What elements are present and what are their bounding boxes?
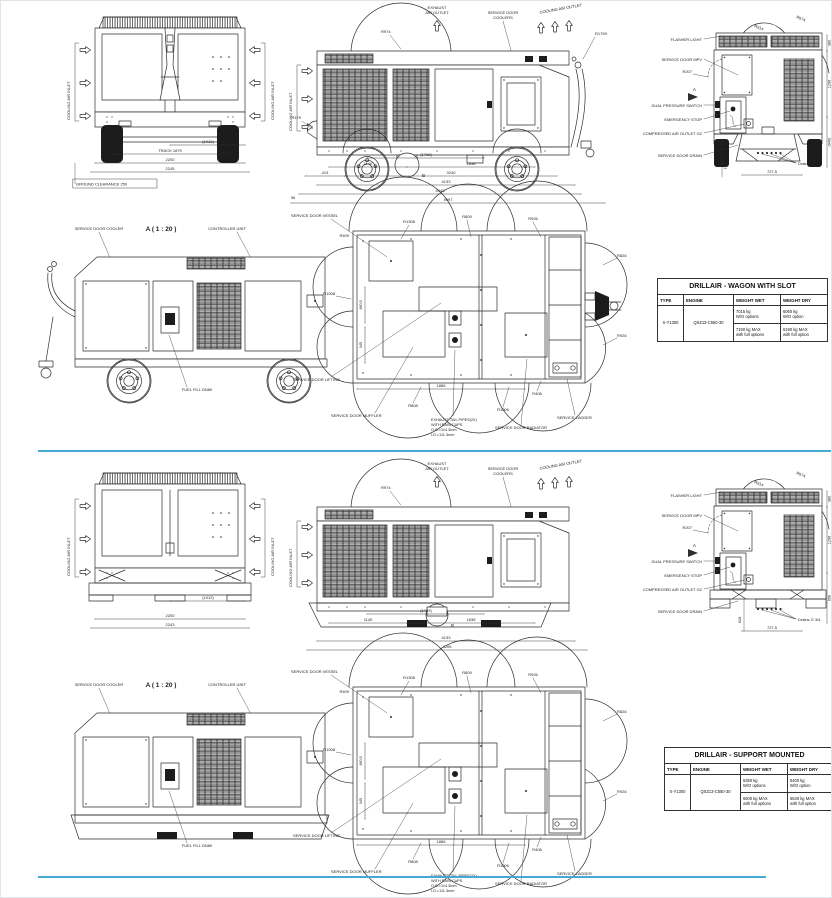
drains-label: Drains G 3/4 (798, 617, 821, 622)
rear-view-drawing (708, 33, 822, 134)
col-weight-dry: WEIGHT DRY (788, 764, 832, 775)
radius-label: R1008 (323, 747, 336, 752)
detail-title: A ( 1 : 20 ) (146, 226, 177, 233)
service-door-lifting-label: SERVICE DOOR LIFTING (293, 833, 340, 838)
side-view-drawing (317, 51, 569, 155)
col-engine: ENGINE (691, 764, 741, 775)
svg-text:AIR OUTLET: AIR OUTLET (425, 466, 449, 471)
col-type: TYPE (658, 295, 684, 306)
svg-text:WITH RAIN CAPS: WITH RAIN CAPS (431, 879, 463, 883)
dim-label: 1296 (828, 536, 832, 544)
front-inlet-right-label: COOLING AIR INLET (270, 81, 275, 120)
dim-label: 1886 (437, 839, 447, 844)
dim-label: 380 (828, 40, 832, 46)
plan-view: R1308 R809 R926 R826 R926 R409 R1008 R80… (291, 177, 627, 438)
detail-view: A ( 1 : 20 ) SERVICE DOOR COOLER CONTROL… (39, 226, 327, 403)
dim-label: 345 (359, 798, 363, 804)
radius-label: R1006 (497, 863, 510, 868)
service-door-muffler-label: SERVICE DOOR MUFFLER (331, 413, 382, 418)
dim-label: 4133 (442, 179, 452, 184)
type-value: X-Y1300 (658, 306, 684, 342)
side-inlet-label: COOLING AIR INLET (288, 92, 293, 131)
svg-text:WITH RAIN CAPS: WITH RAIN CAPS (431, 423, 463, 427)
drains-label: Drains G 3/4 (798, 161, 821, 166)
dim-label: 4133 (442, 635, 452, 640)
air-flow-arrow-icon (80, 503, 91, 510)
compressed-air-outlet-label: COMPRESSED AIR OUTLET G2 (643, 131, 703, 136)
cooling-outlet-label: COOLING AIR OUTLET (539, 458, 583, 470)
dim-label: 2243 (166, 622, 176, 627)
detail-title: A ( 1 : 20 ) (146, 682, 177, 689)
radius-label: R974 (381, 29, 391, 34)
air-flow-arrow-icon (80, 113, 91, 120)
svg-text:COOLERS: COOLERS (493, 15, 513, 20)
radius-label: R1006 (497, 407, 510, 412)
radius-label: R1008 (323, 291, 336, 296)
service-door-lifting-label: SERVICE DOOR LIFTING (293, 377, 340, 382)
dim-label: 1140 (364, 161, 373, 166)
emergency-stop-label: EMERGENCY STOP (664, 117, 702, 122)
dim-label: 1886 (437, 383, 447, 388)
radius-label: R409 (339, 233, 349, 238)
dim-label: (1789) (420, 608, 432, 613)
svg-text:AIR OUTLET: AIR OUTLET (425, 10, 449, 15)
service-door-drain-label: SERVICE DOOR DRAIN (658, 609, 702, 614)
up-arrow-icon (552, 477, 559, 488)
service-ladder-label: SERVICE LADDER (557, 415, 592, 420)
engine-value: QSZ13-C550-30 (691, 775, 741, 811)
flasher-light-label: FLASHER LIGHT (671, 493, 703, 498)
air-flow-arrow-icon (249, 47, 260, 54)
detail-marker-b: B (422, 173, 425, 178)
up-arrow-icon (552, 21, 559, 32)
radius-label: R314 (754, 23, 765, 32)
weight-dry-base: 6060 kgW/O option (781, 306, 828, 324)
dim-label: 96 (291, 196, 295, 200)
front-inlet-right-label: COOLING AIR INLET (270, 537, 275, 576)
service-door-muffler-label: SERVICE DOOR MUFFLER (331, 869, 382, 874)
air-flow-arrow-icon (302, 524, 313, 531)
radius-label: R926 (528, 216, 538, 221)
dim-label: 3240 (447, 170, 457, 175)
radius-label: R926 (617, 333, 627, 338)
section-marker-a: A (693, 87, 697, 92)
radius-label: R826 (617, 253, 627, 258)
radius-label: R408 (532, 391, 542, 396)
dim-label: 1296 (828, 80, 832, 88)
side-inlet-label: COOLING AIR INLET (288, 548, 293, 587)
service-door-vessel-label: SERVICE DOOR VESSEL (291, 213, 339, 218)
svg-text:I.D.=111.3mm: I.D.=111.3mm (431, 889, 454, 893)
rear-view: R314 R574 (643, 14, 832, 177)
compressed-air-outlet-label: COMPRESSED AIR OUTLET G2 (643, 587, 703, 592)
plan-view-drawing (353, 687, 585, 839)
service-door-mpv-label: SERVICE DOOR MPV (662, 57, 703, 62)
radius-label: R409 (339, 689, 349, 694)
service-door-vessel-label: SERVICE DOOR VESSEL (291, 669, 339, 674)
radius-label: R179 (291, 115, 301, 120)
rear-view: R314 R574 (643, 470, 832, 631)
side-view: R974 EXHAUST AIR OUTLET SERVICE DOOR COO… (288, 458, 587, 650)
up-arrow-icon (434, 20, 441, 31)
radius-label: R207 (682, 525, 692, 530)
dim-label: 1140 (364, 617, 373, 622)
radius-label: R574 (796, 470, 807, 479)
table-title: DRILLAIR - SUPPORT MOUNTED (665, 748, 832, 764)
plan-view-drawing (353, 231, 585, 383)
radius-label: R826 (617, 709, 627, 714)
up-arrow-icon (566, 20, 573, 31)
weight-wet-max: 7150 kg MAXwith full options (734, 324, 781, 342)
dim-label: 2200 (166, 157, 176, 162)
dim-label: 480,5 (359, 300, 363, 310)
front-view-drawing: (1012) TRACK 1879 2200 2245 GROUND CLEAR… (73, 17, 249, 188)
exhaust-tail-pipes-label: EXHAUST TAIL PIPES(2X) (431, 418, 478, 422)
dim-label: 1638 (467, 161, 477, 166)
air-flow-arrow-icon (249, 503, 260, 510)
rear-vertical-dimensions: 380 1296 (940) 2566 (827, 35, 832, 167)
dim-label: 345 (359, 342, 363, 348)
up-arrow-icon (538, 22, 545, 33)
side-view-drawing (317, 507, 569, 611)
dim-label: (1012) (202, 139, 214, 144)
svg-text:O.D.=114.3mm: O.D.=114.3mm (431, 884, 457, 888)
up-arrow-icon (434, 476, 441, 487)
radius-label: R809 (462, 214, 472, 219)
col-weight-dry: WEIGHT DRY (781, 295, 828, 306)
air-flow-arrow-icon (249, 569, 260, 576)
radius-label: R809 (462, 670, 472, 675)
fuel-fill-label: FUEL FILL DN80 (182, 843, 213, 848)
dual-pressure-switch-label: DUAL PRESSURE SWITCH (651, 559, 702, 564)
radius-label: R1759 (595, 31, 608, 36)
air-flow-arrow-icon (302, 580, 313, 587)
dim-label: 2200 (166, 613, 176, 618)
dim-label: TRACK 1879 (158, 148, 182, 153)
dim-label: 1638 (467, 617, 477, 622)
emergency-stop-label: EMERGENCY STOP (664, 573, 702, 578)
front-view: COOLING AIR INLET COOLING AIR INLET (66, 17, 275, 188)
dim-label: 380 (828, 496, 832, 502)
air-flow-arrow-icon (249, 80, 260, 87)
radius-label: R574 (796, 14, 807, 23)
bottom-divider-line (38, 876, 766, 878)
side-dimensions: (1798) 1140 1638 413 3240 4133 4443 4997… (291, 152, 605, 203)
air-flow-arrow-icon (249, 536, 260, 543)
service-door-cooler-label: SERVICE DOOR COOLER (75, 682, 124, 687)
weight-dry-base: 5400 kgW/O option (788, 775, 832, 793)
table-title: DRILLAIR - WAGON WITH SLOT (658, 279, 828, 295)
radius-label: R926 (617, 789, 627, 794)
dim-label: 413 (322, 170, 329, 175)
weight-wet-base: 7015 kgW/O options (734, 306, 781, 324)
side-view: R974 EXHAUST AIR OUTLET SERVICE DOOR COO… (288, 2, 608, 203)
detail-view-drawing (75, 257, 327, 367)
dim-label: (1012) (202, 595, 214, 600)
svg-text:B: B (451, 623, 454, 628)
dim-label: 650 (828, 595, 832, 601)
plan-view: R1308 R809 R926 R826 R926 R409 R1008 R80… (291, 633, 627, 894)
up-arrow-icon (566, 476, 573, 487)
dim-label: 480,5 (359, 756, 363, 766)
air-flow-arrow-icon (249, 113, 260, 120)
engine-value: QSZ13-C550-30 (684, 306, 734, 342)
col-weight-wet: WEIGHT WET (734, 295, 781, 306)
air-flow-arrow-icon (80, 80, 91, 87)
section-marker-a: A (693, 543, 697, 548)
controller-unit-label: CONTROLLER UNIT (208, 226, 246, 231)
spec-table-wagon: DRILLAIR - WAGON WITH SLOT TYPE ENGINE W… (657, 278, 828, 342)
radius-label: R808 (408, 859, 418, 864)
service-door-radiator-label: SERVICE DOOR RADIATOR (495, 881, 547, 886)
dim-label: (1105) (723, 158, 727, 169)
radius-label: R1308 (403, 219, 416, 224)
service-door-drain-label: SERVICE DOOR DRAIN (658, 153, 702, 158)
air-flow-arrow-icon (302, 552, 313, 559)
air-flow-arrow-icon (80, 536, 91, 543)
dim-label: 727,5 (767, 625, 778, 630)
rear-vertical-dimensions: 380 1296 650 2096 (827, 491, 832, 623)
service-door-cooler-label: SERVICE DOOR COOLER (75, 226, 124, 231)
air-flow-arrow-icon (80, 569, 91, 576)
weight-dry-max: 5540 kg MAXwith full option (788, 793, 832, 811)
radius-label: R974 (381, 485, 391, 490)
panel-support-mounted: COOLING AIR INLET COOLING AIR INLET (1, 457, 832, 898)
up-arrow-icon (538, 478, 545, 489)
dim-label: 2245 (166, 166, 176, 171)
air-flow-arrow-icon (80, 47, 91, 54)
flasher-light-label: FLASHER LIGHT (671, 37, 703, 42)
svg-text:I.D.=111.3mm: I.D.=111.3mm (431, 433, 454, 437)
radius-label: R314 (754, 479, 765, 488)
air-flow-arrow-icon (302, 96, 313, 103)
weight-wet-base: 6360 kgW/O options (741, 775, 788, 793)
front-view: COOLING AIR INLET COOLING AIR INLET (66, 473, 275, 628)
service-door-radiator-label: SERVICE DOOR RADIATOR (495, 425, 547, 430)
panel-wagon-with-slot: COOLING AIR INLET COOLING AIR INLET (1, 1, 832, 453)
col-engine: ENGINE (684, 295, 734, 306)
spec-table-support: DRILLAIR - SUPPORT MOUNTED TYPE ENGINE W… (664, 747, 832, 811)
panel-divider-line (38, 450, 832, 452)
front-inlet-left-label: COOLING AIR INLET (66, 537, 71, 576)
front-inlet-left-label: COOLING AIR INLET (66, 81, 71, 120)
detail-view: A ( 1 : 20 ) SERVICE DOOR COOLER CONTROL… (71, 682, 329, 848)
controller-unit-label: CONTROLLER UNIT (208, 682, 246, 687)
svg-text:O.D.=114.3mm: O.D.=114.3mm (431, 428, 457, 432)
col-type: TYPE (665, 764, 691, 775)
cooling-outlet-label: COOLING AIR OUTLET (539, 2, 583, 14)
service-door-mpv-label: SERVICE DOOR MPV (662, 513, 703, 518)
svg-text:COOLERS: COOLERS (493, 471, 513, 476)
dim-label: (940) (828, 137, 832, 147)
radius-label: R1308 (403, 675, 416, 680)
type-value: X-Y1300 (665, 775, 691, 811)
weight-dry-max: 6190 kg MAXwith full option (781, 324, 828, 342)
radius-label: R926 (528, 672, 538, 677)
air-flow-arrow-icon (302, 68, 313, 75)
rear-view-drawing (708, 489, 822, 590)
radius-label: R408 (532, 847, 542, 852)
dim-label: 628 (738, 617, 742, 623)
radius-label: R808 (408, 403, 418, 408)
front-view-drawing: (1012) 2200 2243 (89, 473, 251, 628)
radius-label: R207 (682, 69, 692, 74)
front-dimensions: (1012) 2200 2243 (91, 595, 249, 628)
dual-pressure-switch-label: DUAL PRESSURE SWITCH (651, 103, 702, 108)
detail-view-drawing (75, 713, 327, 823)
fuel-fill-label: FUEL FILL DN80 (182, 387, 213, 392)
ground-clearance-label: GROUND CLEARANCE 250 (76, 182, 128, 187)
col-weight-wet: WEIGHT WET (741, 764, 788, 775)
drawing-sheet: COOLING AIR INLET COOLING AIR INLET (0, 0, 832, 898)
dim-label: 727,5 (767, 169, 778, 174)
weight-wet-max: 6500 kg MAXwith full options (741, 793, 788, 811)
dim-label: (1798) (420, 152, 432, 157)
